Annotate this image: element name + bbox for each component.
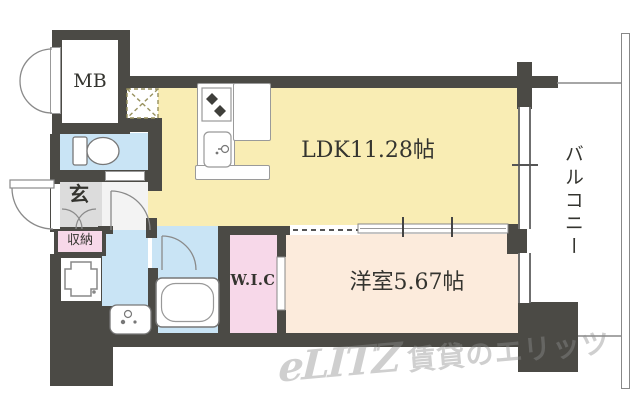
entry-door-icon [10,180,54,229]
room-hall [102,182,148,230]
wall-segment [125,118,162,132]
window-ldk [518,107,531,229]
wall-segment [52,123,130,134]
wall-segment [520,76,558,88]
kitchen-counter [197,83,235,169]
wall-segment [146,218,157,238]
mb-label: MB [62,71,118,92]
elevator-box [61,258,101,301]
room-toilet [60,133,148,171]
wall-segment [148,268,158,333]
wall-segment [52,333,520,347]
storage-label: 収納 [58,234,102,248]
mb-door-jamb [50,47,61,114]
ldk-label: LDK11.28帖 [258,139,478,163]
bedroom-label: 洋室5.67帖 [297,271,517,295]
room-washroom [102,230,148,306]
floorplan: MB LDK11.28帖 洋室5.67帖 W.I.C 玄 収納 バルコニー eL… [0,0,640,416]
washbasin-icon [110,305,151,334]
wic-label: W.I.C [229,273,277,289]
wall-segment [277,234,286,257]
kitchen-counter-base [195,165,270,180]
entrance-label: 玄 [59,183,99,205]
wall-segment [277,310,286,334]
kitchen-counter-side [233,83,271,141]
wall-segment [125,76,520,88]
window-bedroom [518,253,531,303]
door-swing-arc-icon [20,49,52,113]
balcony-railing [621,33,630,389]
wall-segment [518,302,578,372]
toilet-door [105,171,145,181]
hatch-icon [127,89,158,118]
room-bathroom [152,226,218,334]
balcony-label: バルコニー [562,126,583,276]
